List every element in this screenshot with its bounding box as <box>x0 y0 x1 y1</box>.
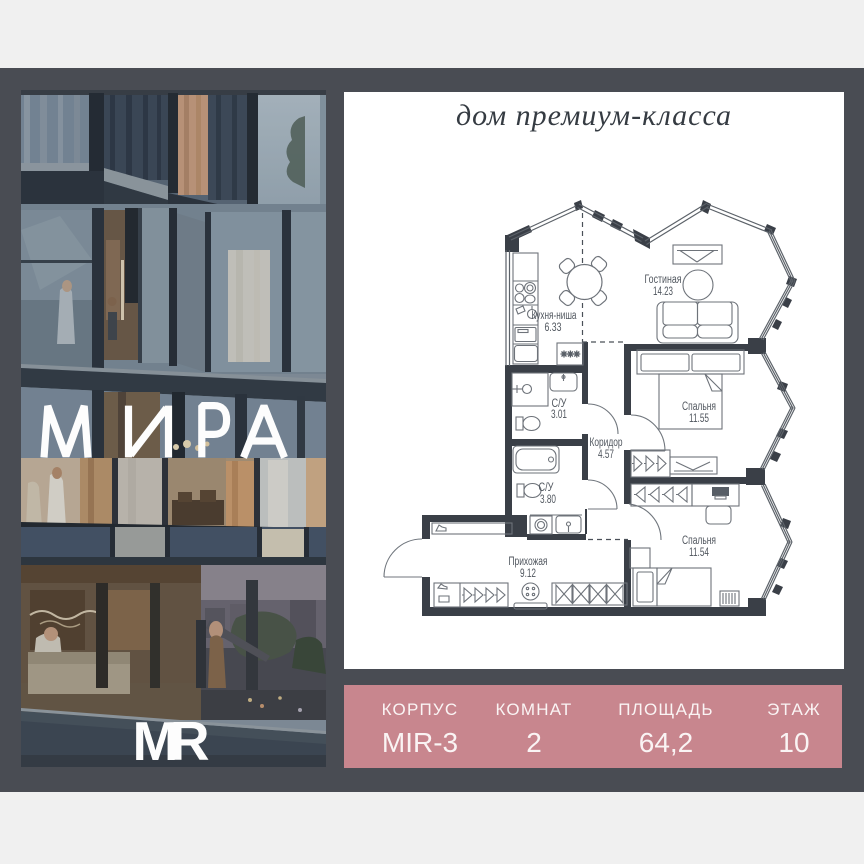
svg-text:6.33: 6.33 <box>545 322 562 334</box>
svg-text:Спальня: Спальня <box>682 401 716 413</box>
svg-text:Гостиная: Гостиная <box>645 274 682 286</box>
svg-text:9.12: 9.12 <box>520 568 536 580</box>
svg-text:4.57: 4.57 <box>598 449 614 461</box>
svg-text:С/У: С/У <box>539 482 555 494</box>
svg-text:11.55: 11.55 <box>689 413 709 425</box>
svg-text:Кухня-ниша: Кухня-ниша <box>532 310 577 322</box>
svg-text:Спальня: Спальня <box>682 535 716 547</box>
svg-text:3.80: 3.80 <box>540 494 556 506</box>
svg-text:Прихожая: Прихожая <box>509 556 548 568</box>
svg-text:14.23: 14.23 <box>653 286 673 298</box>
svg-text:3.01: 3.01 <box>551 409 567 421</box>
svg-text:11.54: 11.54 <box>689 547 709 559</box>
svg-text:MR: MR <box>133 710 209 767</box>
svg-text:Коридор: Коридор <box>590 437 623 449</box>
